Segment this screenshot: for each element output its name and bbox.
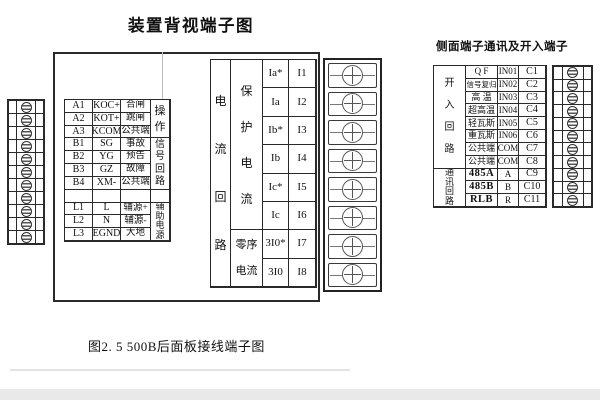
slot-screw-icon <box>567 93 578 104</box>
ct-signal: Ib <box>263 145 289 173</box>
input-name: Q F <box>466 66 498 79</box>
input-code: IN06 <box>498 130 519 143</box>
slot-screw-icon <box>567 131 578 142</box>
terminal-code: SG <box>93 138 121 151</box>
terminal-code: XM- <box>93 177 121 190</box>
group-label-operation: 操作 <box>151 100 170 138</box>
input-code: IN02 <box>498 79 519 92</box>
slot-screw-icon <box>567 144 578 155</box>
terminal-cell <box>9 230 43 243</box>
faint-divider-line <box>10 369 350 371</box>
terminal-no: B3 <box>65 164 93 177</box>
terminal-desc: 大地 <box>121 228 151 241</box>
current-circuit-table: 电流回路 保护电流 零序电流 Ia* I1 Ia I2 Ib* I3 Ib I4… <box>210 59 317 288</box>
side-terminal: C5 <box>519 117 546 130</box>
bottom-gray-band <box>0 389 600 400</box>
terminal-no: B1 <box>65 138 93 151</box>
group-label-zero-seq-current: 零序电流 <box>231 230 263 287</box>
comm-name: 485B <box>466 181 498 194</box>
slot-screw-icon <box>21 154 32 165</box>
ct-terminal: I1 <box>289 60 316 88</box>
terminal-cell <box>9 101 43 113</box>
terminal-no: A3 <box>65 126 93 139</box>
cross-screw-icon <box>342 264 363 285</box>
slot-screw-icon <box>21 232 32 243</box>
ct-signal: Ic <box>263 202 289 230</box>
cross-screw-icon <box>342 179 363 200</box>
slot-screw-icon <box>567 182 578 193</box>
terminal-cell <box>554 67 591 79</box>
ct-terminal: I5 <box>289 174 316 202</box>
terminal-code: N <box>93 215 121 228</box>
slot-screw-icon <box>21 206 32 217</box>
side-terminal: C3 <box>519 92 546 105</box>
slot-screw-icon <box>567 195 578 206</box>
comm-code: B <box>498 181 519 194</box>
terminal-no: L3 <box>65 228 93 241</box>
ct-signal: Ia* <box>263 60 289 88</box>
side-terminal-strip <box>552 65 593 208</box>
group-label-aux-power: 辅助电源 <box>151 203 170 241</box>
terminal-cell <box>328 206 377 231</box>
input-code: IN01 <box>498 66 519 79</box>
terminal-cell <box>328 63 377 88</box>
terminal-cell <box>328 263 377 288</box>
terminal-no: B2 <box>65 151 93 164</box>
terminal-code: GZ <box>93 164 121 177</box>
slot-screw-icon <box>567 67 578 78</box>
manual-page: 装置背视端子图 侧面端子通讯及开入端子 A1 KOC+ 合闸 A2 KOT+ 跳… <box>0 0 600 400</box>
cross-screw-icon <box>342 207 363 228</box>
terminal-cell <box>554 193 591 206</box>
input-name: 公共端 <box>466 156 498 169</box>
input-code: IN05 <box>498 117 519 130</box>
terminal-no: L1 <box>65 203 93 216</box>
cross-screw-icon <box>342 122 363 143</box>
current-terminal-strip <box>323 58 382 292</box>
terminal-desc <box>121 190 151 203</box>
terminal-code: KCOM <box>93 126 121 139</box>
terminal-cell <box>554 142 591 155</box>
ct-terminal: I8 <box>289 259 316 287</box>
ct-signal: 3I0* <box>263 230 289 258</box>
side-terminal: C11 <box>519 194 546 207</box>
terminal-cell <box>328 149 377 174</box>
ct-terminal: I6 <box>289 202 316 230</box>
terminal-desc: 辅源+ <box>121 203 151 216</box>
terminal-code: EGND <box>93 228 121 241</box>
ct-signal: Ic* <box>263 174 289 202</box>
terminal-code <box>93 190 121 203</box>
terminal-code: KOC+ <box>93 100 121 113</box>
group-label-signal: 信号回路 <box>151 138 170 189</box>
cross-screw-icon <box>342 93 363 114</box>
terminal-no: L2 <box>65 215 93 228</box>
slot-screw-icon <box>21 219 32 230</box>
input-code: COM <box>498 143 519 156</box>
slot-screw-icon <box>21 193 32 204</box>
terminal-desc: 公共端 <box>121 126 151 139</box>
page-title: 装置背视端子图 <box>128 12 254 36</box>
terminal-no: A2 <box>65 113 93 126</box>
ct-signal: 3I0 <box>263 259 289 287</box>
ct-terminal: I4 <box>289 145 316 173</box>
terminal-cell <box>554 130 591 143</box>
terminal-cell <box>554 117 591 130</box>
terminal-desc: 故障 <box>121 164 151 177</box>
side-terminal: C7 <box>519 143 546 156</box>
cross-screw-icon <box>342 150 363 171</box>
terminal-cell <box>9 165 43 178</box>
input-code: COM <box>498 156 519 169</box>
terminal-cell <box>554 168 591 181</box>
input-name: 轻瓦斯 <box>466 117 498 130</box>
group-label-blank <box>151 190 170 203</box>
slot-screw-icon <box>21 141 32 152</box>
terminal-cell <box>554 155 591 168</box>
ct-terminal: I7 <box>289 230 316 258</box>
terminal-cell <box>9 113 43 126</box>
terminal-code: KOT+ <box>93 113 121 126</box>
terminal-cell <box>554 181 591 194</box>
slot-screw-icon <box>21 128 32 139</box>
ct-signal: Ia <box>263 88 289 116</box>
side-terminal: C9 <box>519 169 546 182</box>
figure-caption: 图2. 5 500B后面板接线端子图 <box>88 336 265 355</box>
terminal-no: A1 <box>65 100 93 113</box>
terminal-cell <box>328 120 377 145</box>
terminal-cell <box>554 91 591 104</box>
terminal-cell <box>328 177 377 202</box>
side-terminal: C1 <box>519 66 546 79</box>
terminal-cell <box>9 217 43 230</box>
terminal-desc: 辅源- <box>121 215 151 228</box>
slot-screw-icon <box>21 115 32 126</box>
terminal-desc: 合闸 <box>121 100 151 113</box>
group-label-protection-current: 保护电流 <box>231 60 263 230</box>
terminal-cell <box>328 234 377 259</box>
terminal-cell <box>9 191 43 204</box>
side-terminal: C6 <box>519 130 546 143</box>
ct-terminal: I2 <box>289 88 316 116</box>
terminal-code: YG <box>93 151 121 164</box>
terminal-cell <box>554 79 591 92</box>
comm-code: R <box>498 194 519 207</box>
cross-screw-icon <box>342 236 363 257</box>
slot-screw-icon <box>567 106 578 117</box>
cross-screw-icon <box>342 65 363 86</box>
input-name: 重瓦斯 <box>466 130 498 143</box>
terminal-desc: 预告 <box>121 151 151 164</box>
terminal-cell <box>9 152 43 165</box>
input-name: 公共端 <box>466 143 498 156</box>
ct-signal: Ib* <box>263 117 289 145</box>
slot-screw-icon <box>567 118 578 129</box>
slot-screw-icon <box>567 157 578 168</box>
side-terminal: C2 <box>519 79 546 92</box>
comm-name: RLB <box>466 194 498 207</box>
input-code: IN03 <box>498 92 519 105</box>
side-terminal: C8 <box>519 156 546 169</box>
terminal-cell <box>9 126 43 139</box>
comm-input-table: 开入回路 通讯回路 Q F IN01 C1 信号复归 IN02 C2 高 温 I… <box>433 65 547 208</box>
input-code: IN04 <box>498 104 519 117</box>
input-name: 超高温 <box>466 104 498 117</box>
group-label-comm-circuit: 通讯回路 <box>434 169 466 207</box>
terminal-cell <box>9 204 43 217</box>
terminal-no: B4 <box>65 177 93 190</box>
input-name: 信号复归 <box>466 79 498 92</box>
terminal-desc: 事故 <box>121 138 151 151</box>
slot-screw-icon <box>567 169 578 180</box>
side-section-title: 侧面端子通讯及开入端子 <box>436 38 568 54</box>
terminal-cell <box>9 139 43 152</box>
terminal-cell <box>554 104 591 117</box>
left-terminal-strip <box>7 99 45 245</box>
operation-signal-table: A1 KOC+ 合闸 A2 KOT+ 跳闸 A3 KCOM 公共端 B1 SG … <box>64 99 171 242</box>
slot-screw-icon <box>21 167 32 178</box>
slot-screw-icon <box>567 80 578 91</box>
slot-screw-icon <box>21 102 32 113</box>
group-label-input-circuit: 开入回路 <box>434 66 466 169</box>
side-terminal: C4 <box>519 104 546 117</box>
comm-code: A <box>498 169 519 182</box>
terminal-cell <box>328 92 377 117</box>
terminal-cell <box>9 178 43 191</box>
group-label-current-circuit: 电流回路 <box>211 60 231 287</box>
ct-terminal: I3 <box>289 117 316 145</box>
input-name: 高 温 <box>466 92 498 105</box>
terminal-no <box>65 190 93 203</box>
comm-name: 485A <box>466 169 498 182</box>
terminal-desc: 跳闸 <box>121 113 151 126</box>
terminal-desc: 公共端 <box>121 177 151 190</box>
terminal-code: L <box>93 203 121 216</box>
side-terminal: C10 <box>519 181 546 194</box>
slot-screw-icon <box>21 180 32 191</box>
